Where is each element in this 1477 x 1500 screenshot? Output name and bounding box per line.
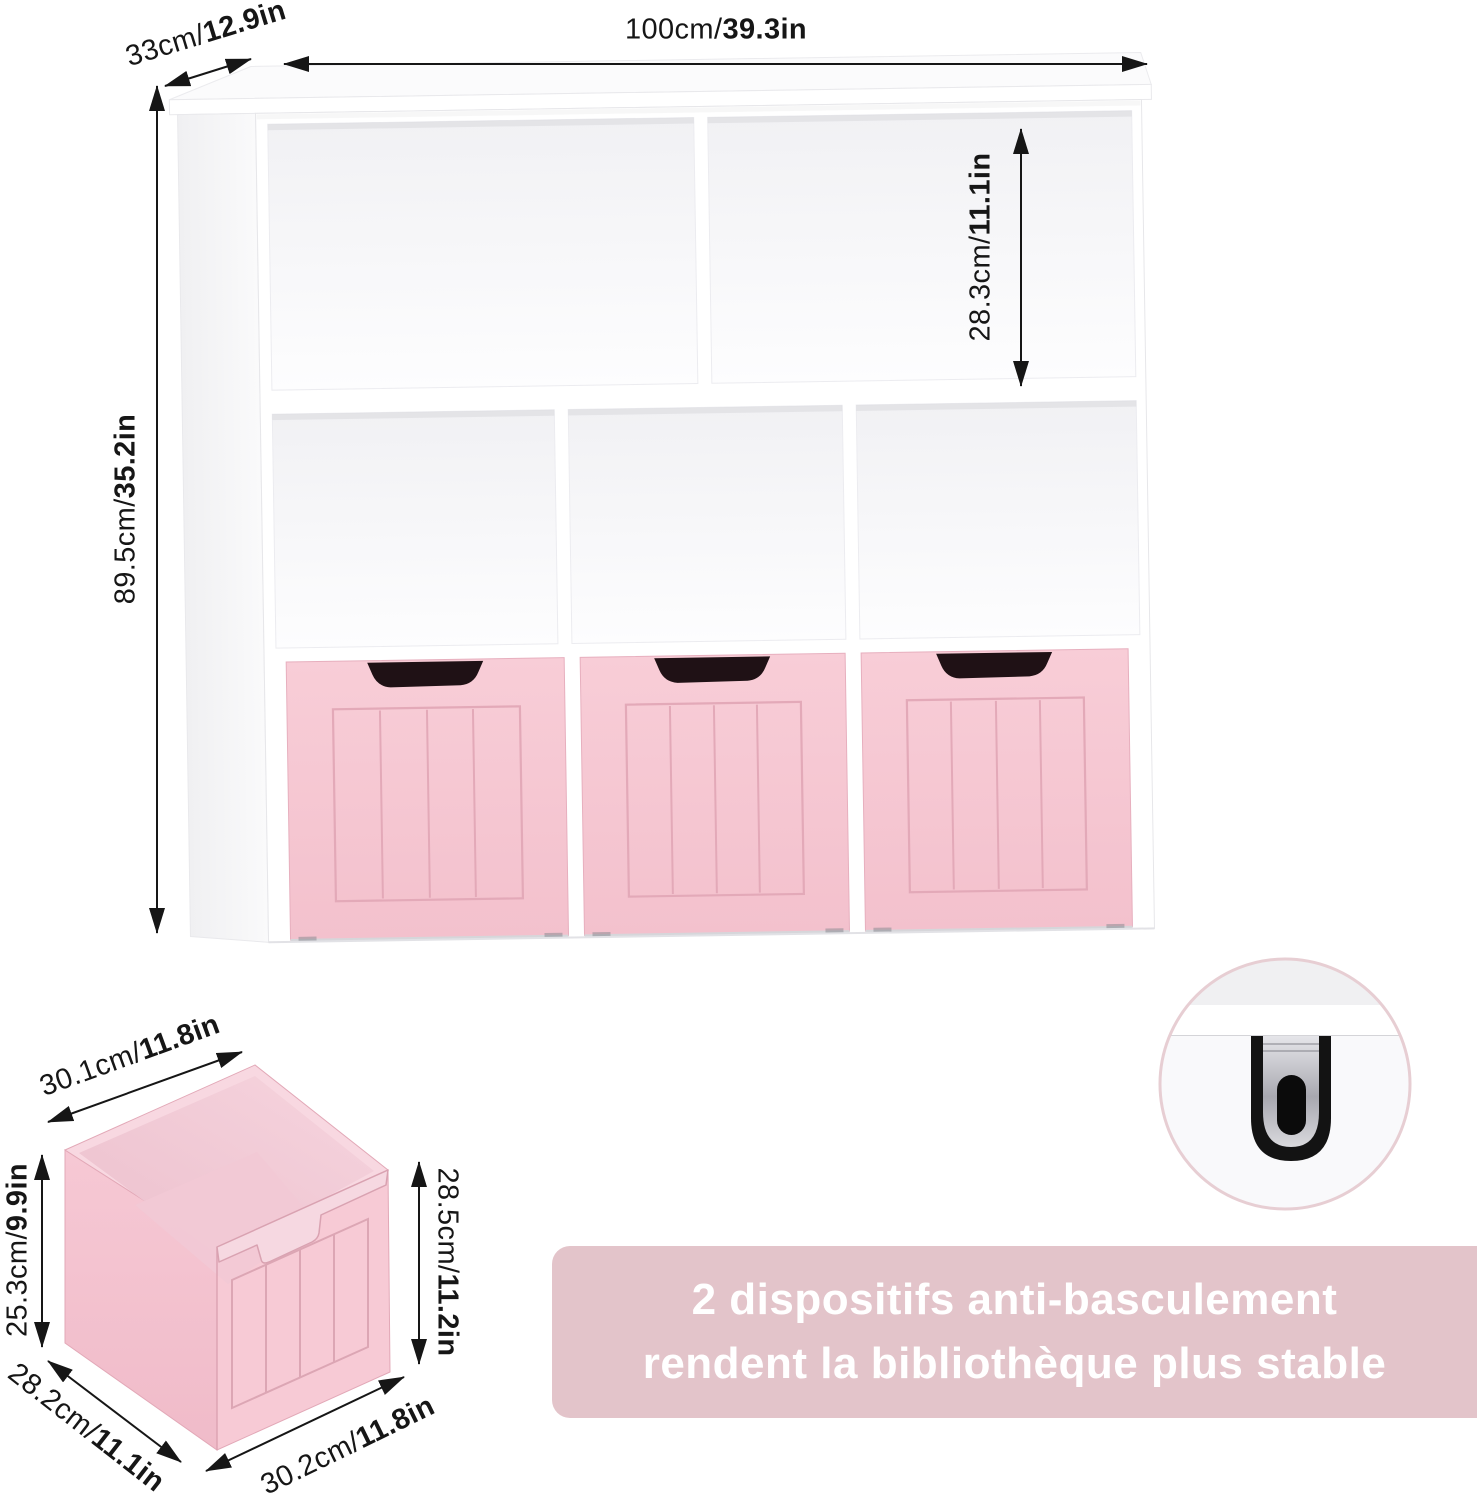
storage-box: [65, 1065, 390, 1450]
product-dimension-diagram: 33cm/12.9in 100cm/39.3in 89.5cm/35.2in 2…: [0, 0, 1477, 1500]
inset-shelf-board: [1158, 1005, 1414, 1036]
banner-line1: 2 dispositifs anti-basculement: [692, 1268, 1338, 1332]
label-cubby-height: 28.3cm/11.1in: [965, 153, 998, 342]
label-box-height-metric: 28.5cm/: [432, 1168, 464, 1274]
bracket-slot: [1277, 1075, 1306, 1135]
label-height-metric: 89.5cm/: [110, 498, 142, 604]
cubby-mid-center: [568, 405, 846, 643]
drawer-handle-notch: [367, 661, 483, 688]
drawer-handle-notch: [936, 652, 1052, 679]
cubby-mid-right: [856, 401, 1140, 639]
cubby-top-left: [268, 118, 698, 391]
bookcase: [169, 52, 1165, 944]
label-cubby-metric: 28.3cm/: [965, 236, 997, 342]
label-box-side-height: 25.3cm/9.9in: [2, 1163, 35, 1337]
label-height: 89.5cm/35.2in: [110, 414, 143, 605]
drawer-left: [286, 658, 568, 943]
label-box-height-imperial: 11.2in: [432, 1273, 464, 1356]
drawer-handle-notch: [654, 656, 770, 683]
anti-tip-inset: [1158, 957, 1414, 1214]
drawer-center: [580, 653, 849, 938]
label-width-imperial: 39.3in: [722, 14, 807, 46]
label-width-metric: 100cm/: [625, 14, 723, 46]
label-box-front-height: 28.5cm/11.2in: [431, 1168, 464, 1357]
banner-line2: rendent la bibliothèque plus stable: [643, 1332, 1387, 1396]
drawer-right: [861, 649, 1132, 934]
cubby-top-right: [708, 111, 1136, 384]
label-cubby-imperial: 11.1in: [965, 153, 997, 236]
label-box-side-imperial: 9.9in: [2, 1163, 34, 1231]
label-height-imperial: 35.2in: [110, 414, 142, 499]
label-width: 100cm/39.3in: [625, 14, 807, 47]
cubby-mid-left: [272, 410, 558, 648]
anti-tip-banner: 2 dispositifs anti-basculement rendent l…: [552, 1246, 1477, 1418]
bookcase-side-panel: [178, 113, 269, 943]
label-box-side-metric: 25.3cm/: [2, 1231, 34, 1337]
